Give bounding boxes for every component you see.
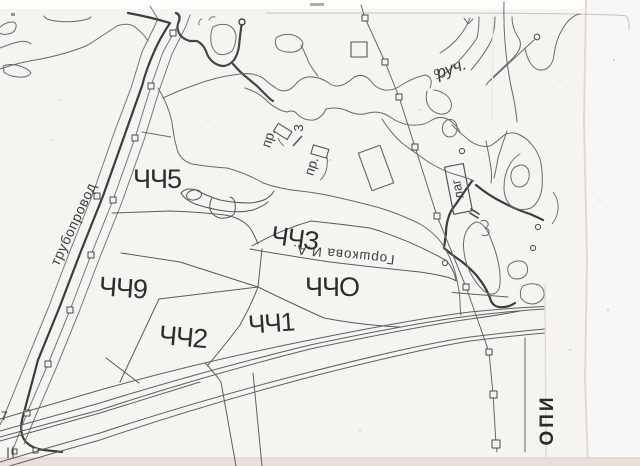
svg-text:ЧЧ5: ЧЧ5 xyxy=(133,164,181,194)
svg-text:7: 7 xyxy=(1,409,8,423)
svg-text:ЧЧ9: ЧЧ9 xyxy=(98,271,148,304)
svg-text:ЧЧ2: ЧЧ2 xyxy=(158,320,208,354)
svg-text:3: 3 xyxy=(291,124,306,132)
svg-text:ЧЧ1: ЧЧ1 xyxy=(247,306,296,339)
svg-text:ЧЧО: ЧЧО xyxy=(305,272,359,302)
svg-text:ОПИ: ОПИ xyxy=(537,394,558,445)
